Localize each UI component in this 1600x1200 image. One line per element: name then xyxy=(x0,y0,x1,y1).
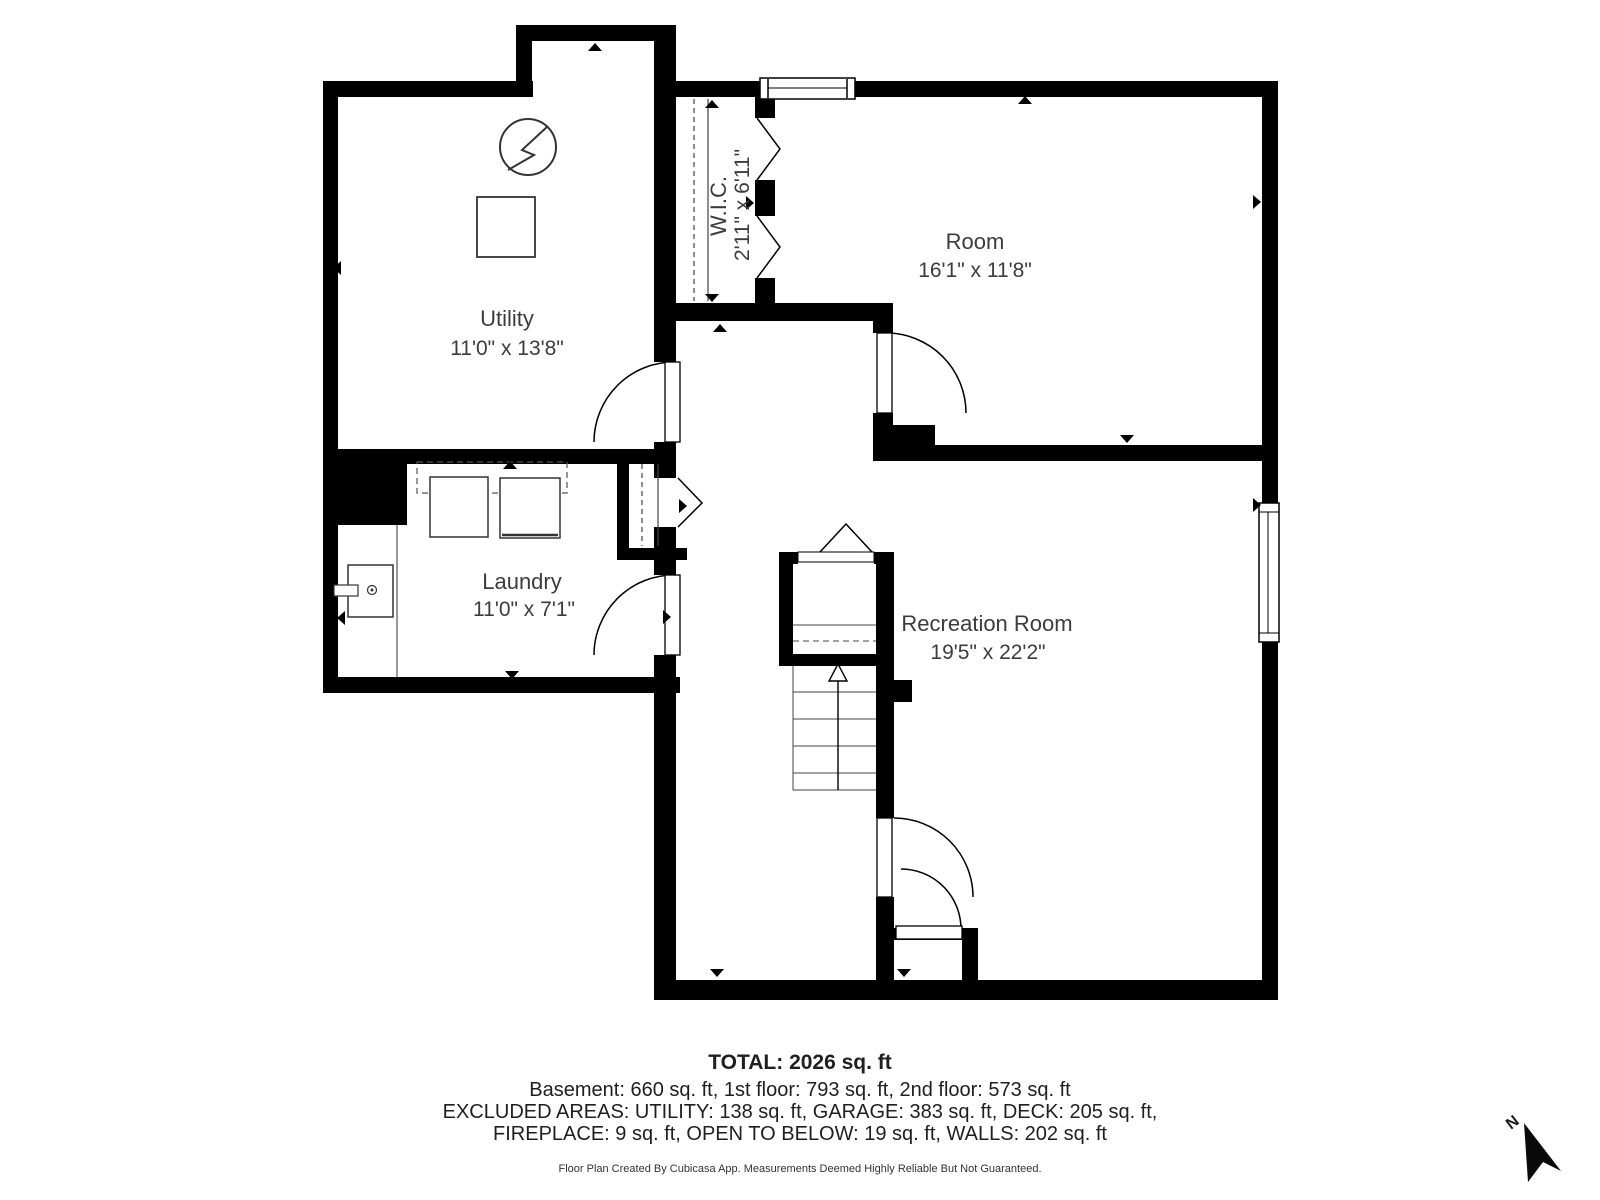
recreation-room-label: Recreation Room xyxy=(901,611,1072,636)
washer-icon xyxy=(430,477,488,537)
room-label: Room xyxy=(946,229,1005,254)
floor-areas-text: Basement: 660 sq. ft, 1st floor: 793 sq.… xyxy=(0,1079,1600,1101)
floor-plan-page: Utility 11'0" x 13'8" W.I.C. 2'11" x 6'1… xyxy=(0,0,1600,1200)
room-dims: 16'1" x 11'8" xyxy=(918,259,1032,282)
wic-label: W.I.C. xyxy=(706,176,731,236)
window-recreation-right xyxy=(1259,503,1279,642)
door-utility xyxy=(594,362,680,442)
wic-dims: 2'11" x 6'11" xyxy=(731,149,754,261)
utility-label: Utility xyxy=(480,306,534,331)
window-room-top xyxy=(760,78,855,99)
sink-icon xyxy=(334,525,397,677)
laundry-dims: 11'0" x 7'1" xyxy=(473,598,575,621)
dryer-icon xyxy=(500,478,560,538)
disclaimer-text: Floor Plan Created By Cubicasa App. Meas… xyxy=(0,1158,1600,1180)
excluded-areas-text-1: EXCLUDED AREAS: UTILITY: 138 sq. ft, GAR… xyxy=(0,1101,1600,1123)
total-area-text: TOTAL: 2026 sq. ft xyxy=(0,1052,1600,1074)
door-recreation xyxy=(877,818,973,897)
recreation-room-dims: 19'5" x 22'2" xyxy=(930,641,1045,664)
furnace-icon xyxy=(477,197,535,257)
door-understairs-closet xyxy=(896,869,962,939)
stairs-up-arrow xyxy=(829,664,847,681)
utility-dims: 11'0" x 13'8" xyxy=(450,337,564,360)
stairs xyxy=(793,625,876,790)
door-room xyxy=(877,333,966,413)
electrical-meter-icon xyxy=(500,119,556,175)
floor-plan-drawing: Utility 11'0" x 13'8" W.I.C. 2'11" x 6'1… xyxy=(0,0,1600,1200)
laundry-label: Laundry xyxy=(482,569,562,594)
excluded-areas-text-2: FIREPLACE: 9 sq. ft, OPEN TO BELOW: 19 s… xyxy=(0,1123,1600,1145)
